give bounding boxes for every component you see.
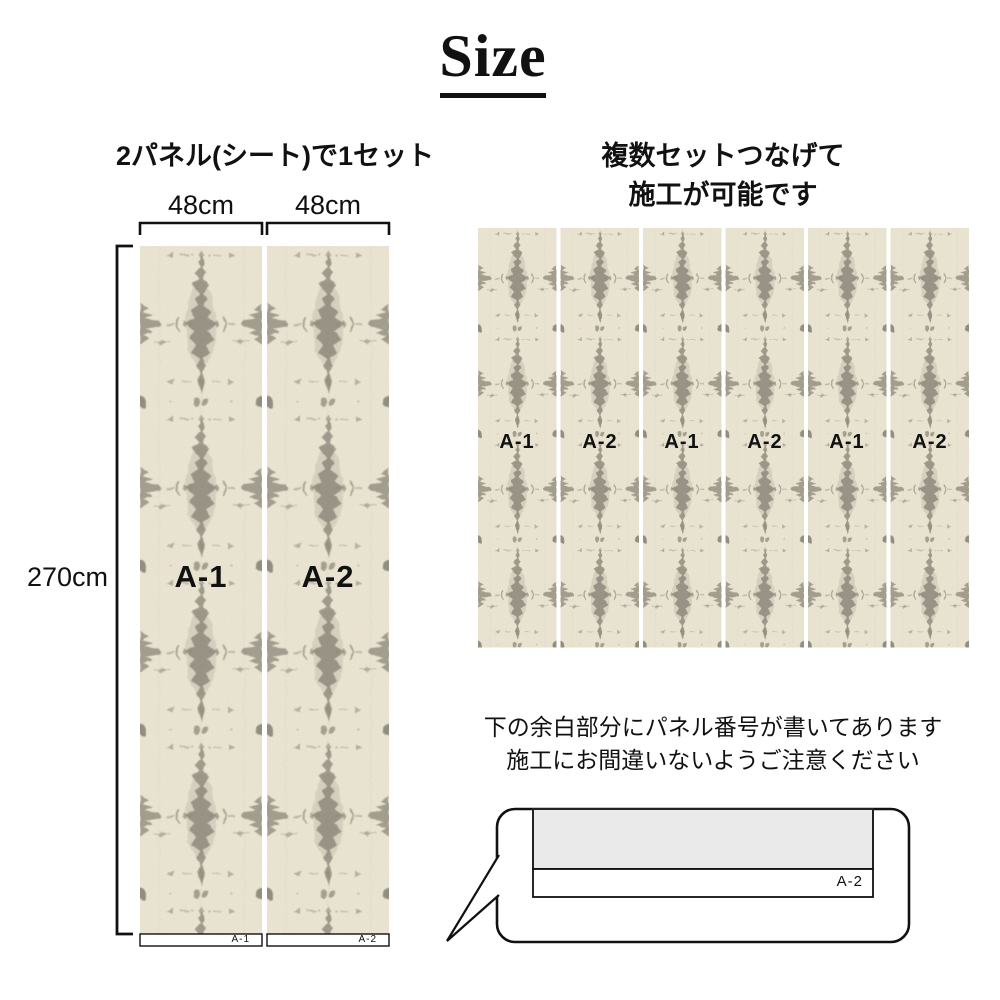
title-underline [440, 93, 546, 98]
height-label: 270cm [0, 564, 108, 591]
panel-label-a1: A-1 [146, 561, 256, 592]
panel-diagram-pattern-area [533, 809, 873, 869]
composite-panel-label-1: A-1 [482, 432, 552, 453]
width-bracket-1 [140, 223, 262, 235]
composite-panel-label-2: A-2 [565, 432, 635, 453]
panel-tag-a2: A-2 [272, 934, 384, 946]
size-diagram-page: Size 2パネル(シート)で1セット 48cm 48cm 270cm A-1 … [0, 0, 1000, 1000]
composite-panel-label-5: A-1 [812, 432, 882, 453]
composite-panel-label-6: A-2 [895, 432, 965, 453]
composite-panel-label-3: A-1 [647, 432, 717, 453]
callout-bubble-figure [430, 795, 980, 960]
margin-tag: A-2 [770, 874, 863, 890]
composite-panel-label-4: A-2 [730, 432, 800, 453]
note-text: 下の余白部分にパネル番号が書いてあります 施工にお間違いないようご注意ください [463, 711, 963, 777]
note-line2: 施工にお間違いないようご注意ください [463, 744, 963, 777]
note-line1: 下の余白部分にパネル番号が書いてあります [463, 711, 963, 744]
right-section-heading: 複数セットつなげて 施工が可能です [520, 137, 926, 215]
height-bracket [117, 246, 133, 934]
left-section-heading: 2パネル(シート)で1セット [70, 140, 480, 172]
right-heading-line2: 施工が可能です [520, 176, 926, 215]
panel-tag-a1: A-1 [145, 934, 257, 946]
page-title: Size [390, 24, 596, 88]
right-heading-line1: 複数セットつなげて [520, 137, 926, 176]
width-bracket-2 [267, 223, 389, 235]
panel-label-a2: A-2 [273, 561, 383, 592]
